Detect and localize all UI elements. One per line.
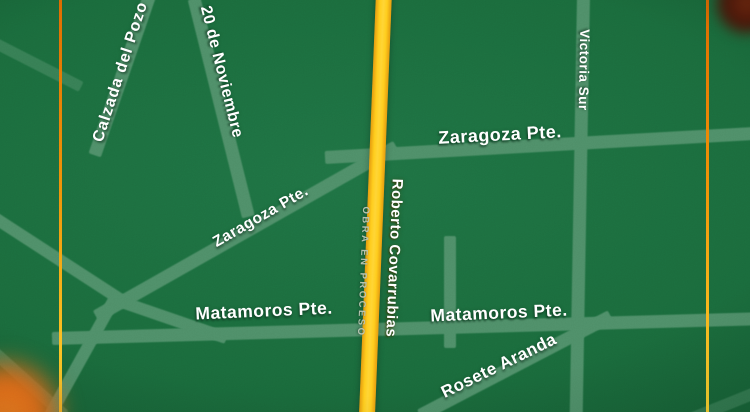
map-stage: Calzada del Pozo 20 de Noviembre Zaragoz… — [0, 0, 750, 412]
road-top-left-faint — [0, 37, 84, 92]
street-label-rosete-aranda: Rosete Aranda — [438, 329, 560, 402]
road-bottom-right-faint — [686, 379, 750, 412]
street-label-zaragoza-pte-west: Zaragoza Pte. — [210, 182, 312, 251]
accent-line-right — [706, 0, 709, 412]
street-label-calzada-del-pozo: Calzada del Pozo — [90, 0, 152, 145]
street-label-matamoros-pte-west: Matamoros Pte. — [195, 298, 333, 325]
dark-flower-blur-icon — [712, 0, 750, 38]
street-label-victoria-sur: Victoria Sur — [576, 29, 592, 111]
street-label-roberto-covarrubias: Roberto Covarrubias — [382, 178, 405, 337]
accent-line-left — [59, 0, 62, 412]
road-west-approach — [0, 213, 126, 306]
road-center-stub — [444, 236, 456, 348]
road-southwest-diagonal — [43, 293, 121, 412]
